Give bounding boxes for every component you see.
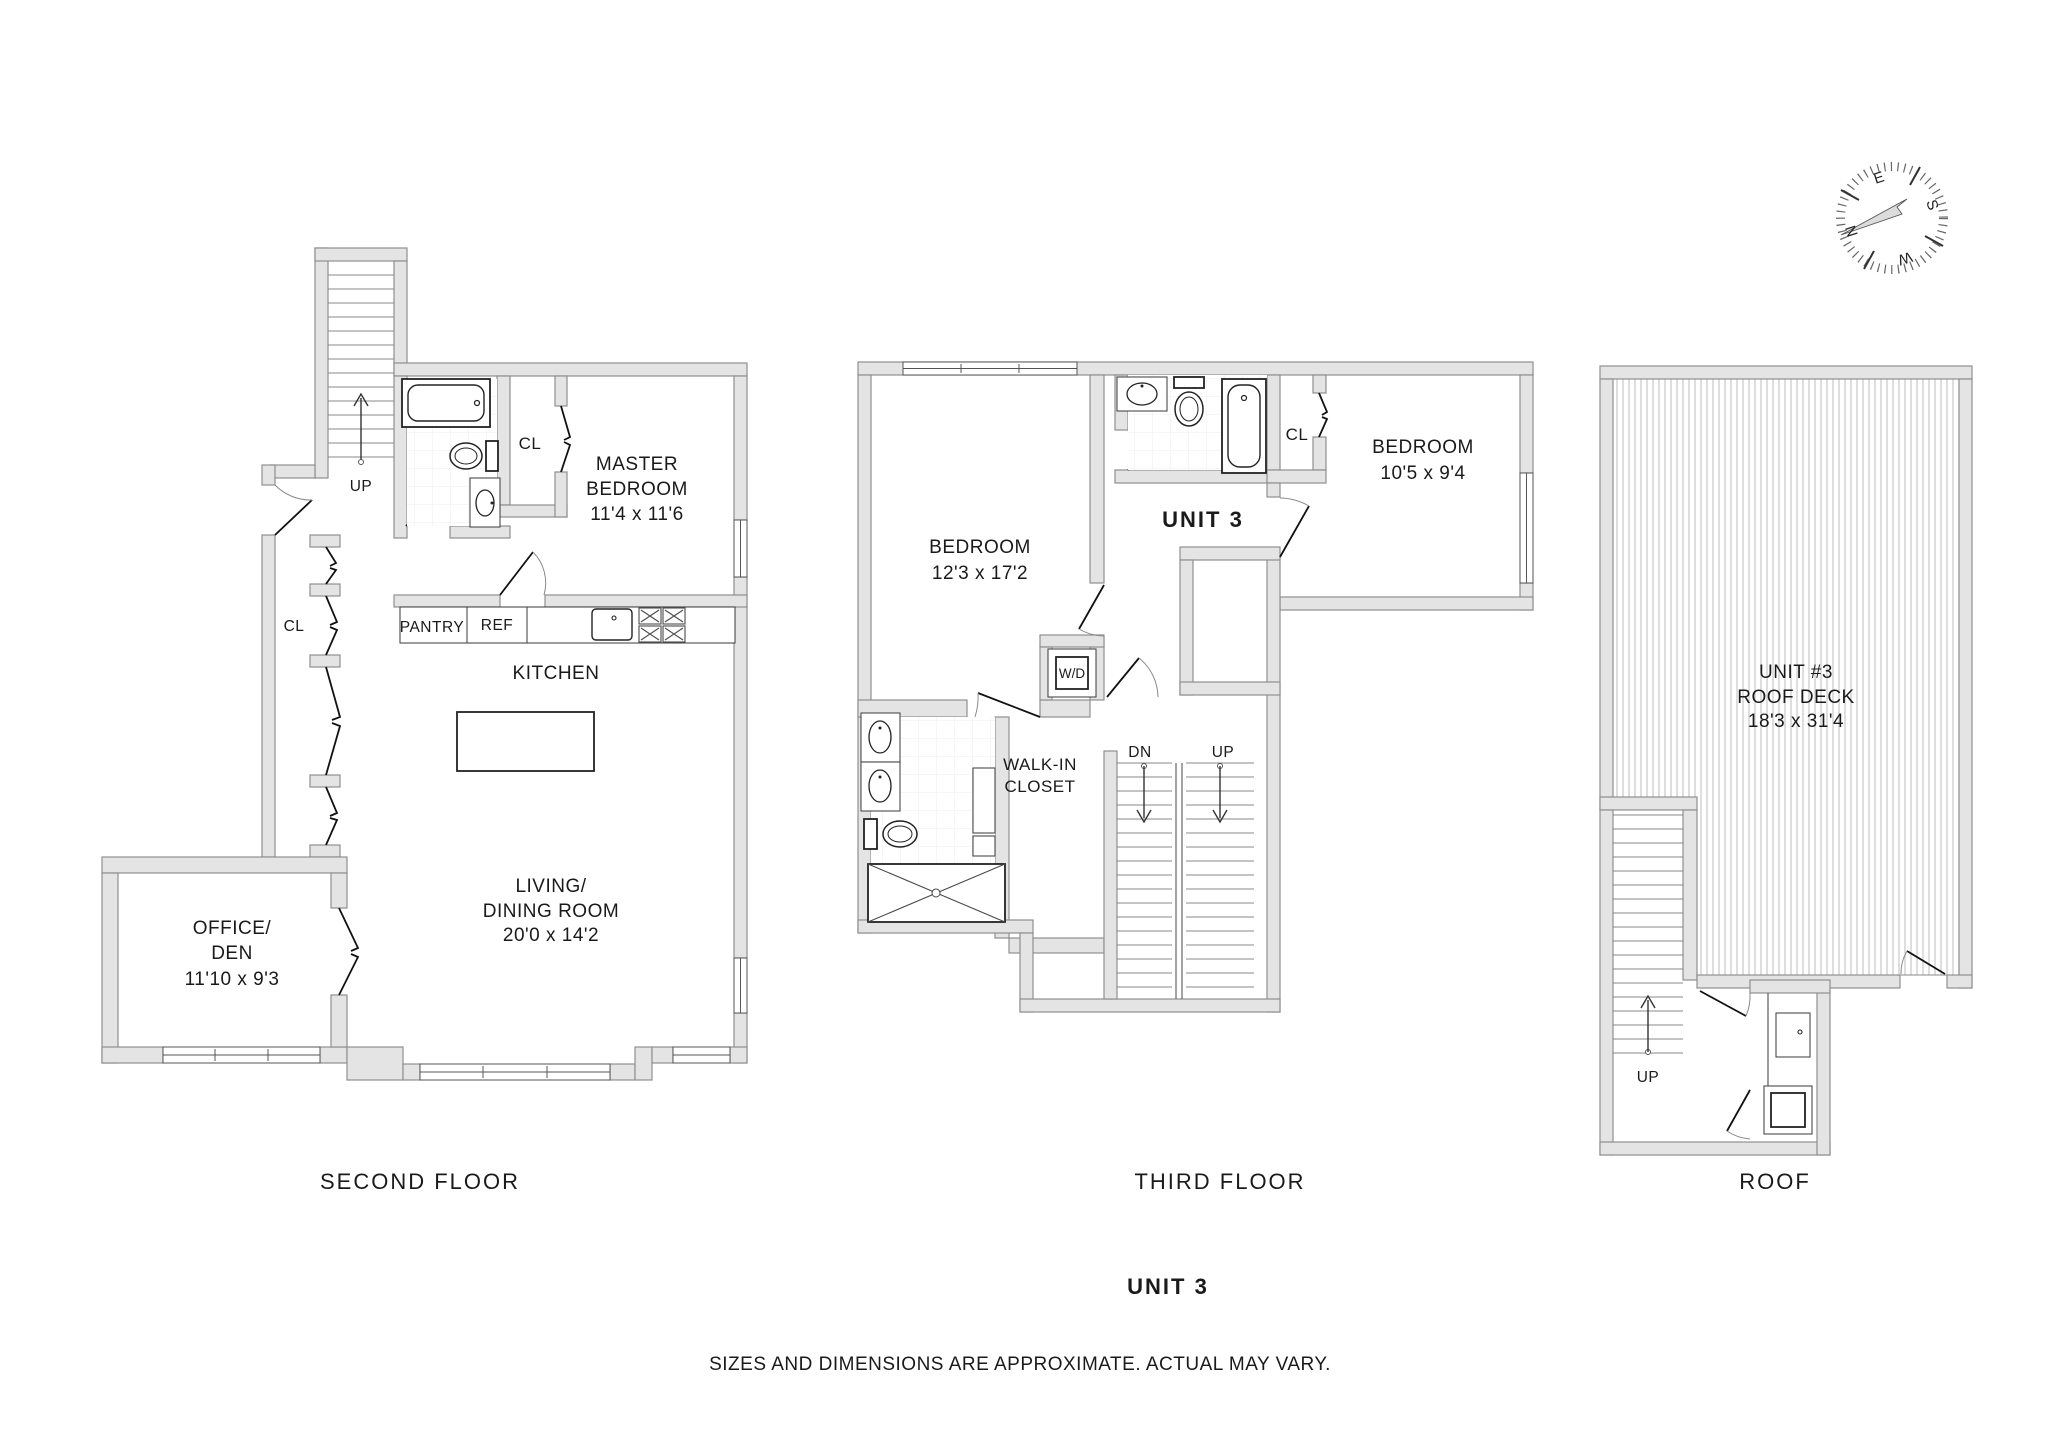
sink: [861, 713, 900, 762]
bedroom1-label: BEDROOM: [929, 537, 1031, 558]
kitchen-label: KITCHEN: [513, 663, 600, 684]
master-bedroom-dims: 11'4 x 11'6: [590, 504, 683, 525]
third-floor-bathroom-bottom: [861, 713, 1005, 922]
shower: [868, 864, 1005, 922]
sink: [1776, 1013, 1810, 1057]
up-arrow: [1213, 764, 1227, 823]
hall-closet-label: CL: [284, 618, 305, 635]
stairs-up-label: UP: [1212, 744, 1235, 761]
second-floor-walls: [102, 248, 747, 1080]
living-label-line2: DINING ROOM: [483, 901, 619, 922]
master-bedroom-label-line2: BEDROOM: [586, 479, 688, 500]
linen-shelf: [973, 768, 995, 833]
third-floor-plan: UNIT 3 BEDROOM 12'3 x 17'2 BEDROOM 10'5 …: [858, 362, 1533, 1012]
second-floor-plan: UP CL PANTRY REF KITCHEN CL MASTER BEDRO…: [102, 248, 747, 1080]
fridge-label: REF: [481, 617, 514, 634]
washer-dryer-label: W/D: [1059, 666, 1085, 681]
bedroom1-dims: 12'3 x 17'2: [932, 563, 1028, 584]
bedroom2-closet-label: CL: [1286, 425, 1309, 444]
living-label-line1: LIVING/: [515, 876, 586, 897]
down-arrow: [1137, 764, 1151, 823]
living-dims: 20'0 x 14'2: [503, 925, 599, 946]
bedroom2-dims: 10'5 x 9'4: [1380, 463, 1465, 484]
second-floor-bathroom: [402, 379, 500, 527]
third-floor-bathroom-top: [1117, 375, 1267, 473]
sink: [861, 762, 900, 811]
disclaimer-text: SIZES AND DIMENSIONS ARE APPROXIMATE. AC…: [709, 1354, 1331, 1375]
roof-stairs: [1613, 815, 1683, 1055]
compass-north-label: N: [1842, 223, 1862, 239]
toilet: [1174, 377, 1204, 426]
master-closet-label: CL: [519, 434, 542, 453]
third-floor-title: THIRD FLOOR: [1134, 1169, 1305, 1194]
second-floor-title: SECOND FLOOR: [320, 1169, 520, 1194]
office-label-line1: OFFICE/: [193, 918, 272, 939]
office-dims: 11'10 x 9'3: [185, 969, 280, 990]
cabinet: [973, 836, 995, 856]
roof-plan: UNIT #3 ROOF DECK 18'3 x 31'4 UP: [1600, 366, 1972, 1155]
unit-title: UNIT 3: [1127, 1274, 1209, 1299]
roof-deck-dims: 18'3 x 31'4: [1748, 711, 1844, 732]
master-bedroom-label-line1: MASTER: [596, 454, 678, 475]
stairs-up-label: UP: [1637, 1069, 1660, 1086]
toilet: [450, 441, 498, 471]
bathtub: [1222, 379, 1266, 473]
roof-bulkhead-room: [1764, 993, 1812, 1134]
pantry-label: PANTRY: [400, 619, 464, 636]
unit-label: UNIT 3: [1162, 507, 1244, 532]
compass-ticks: [1841, 167, 1944, 270]
walkin-label-line2: CLOSET: [1004, 777, 1075, 796]
walkin-label-line1: WALK-IN: [1003, 755, 1077, 774]
stairs-up-label: UP: [350, 478, 373, 495]
compass-east-label: E: [1872, 168, 1887, 187]
kitchen-island: [457, 712, 594, 771]
kitchen-sink: [592, 609, 632, 640]
bathtub: [402, 379, 490, 427]
roof-title: ROOF: [1739, 1169, 1811, 1194]
office-label-line2: DEN: [211, 943, 253, 964]
roof-deck-label-line2: ROOF DECK: [1737, 687, 1854, 708]
floorplan-page: UP CL PANTRY REF KITCHEN CL MASTER BEDRO…: [0, 0, 2048, 1448]
roof-deck-label-line1: UNIT #3: [1759, 662, 1833, 683]
second-floor-stairs: [328, 275, 394, 465]
footer-labels: SECOND FLOOR THIRD FLOOR ROOF UNIT 3 SIZ…: [320, 1169, 1811, 1375]
compass-south-label: S: [1922, 198, 1941, 213]
stairs-down-label: DN: [1128, 744, 1151, 761]
compass-rose: E S W N: [1841, 167, 1944, 270]
toilet: [864, 819, 917, 849]
bedroom2-label: BEDROOM: [1372, 437, 1474, 458]
floorplan-canvas: UP CL PANTRY REF KITCHEN CL MASTER BEDRO…: [0, 0, 2048, 1448]
third-floor-stairs: [1117, 763, 1254, 999]
sink: [1117, 377, 1167, 411]
equipment: [1764, 1086, 1812, 1134]
sink: [470, 478, 500, 527]
